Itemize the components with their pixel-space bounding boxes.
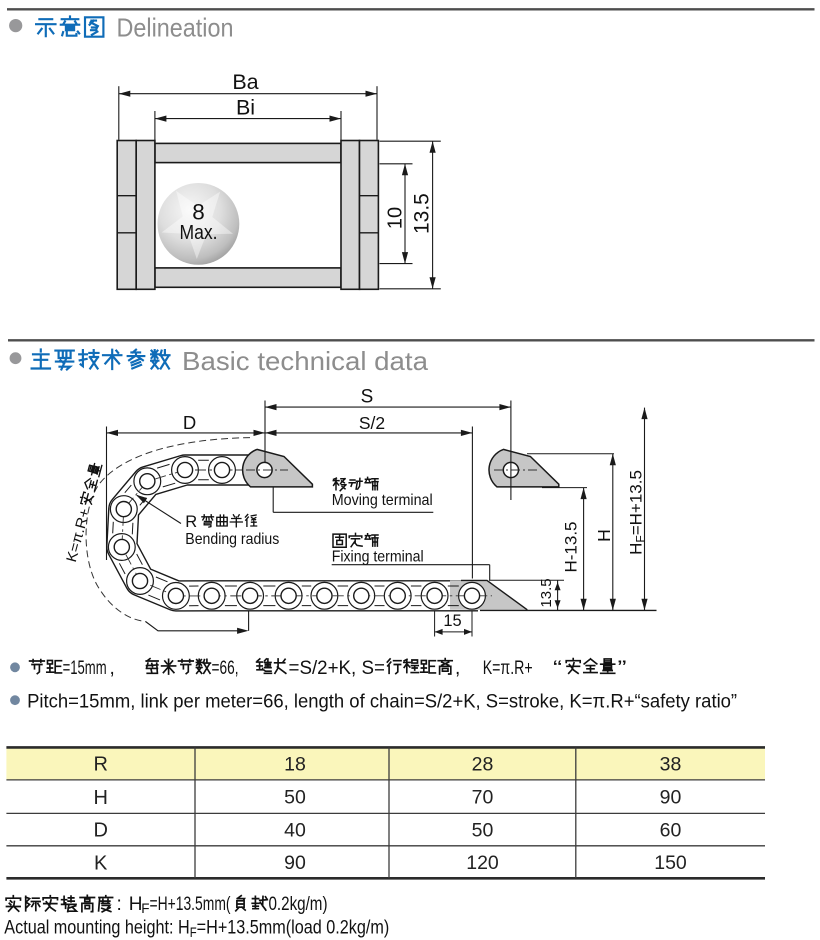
svg-text:=H+13.5mm(: =H+13.5mm( xyxy=(150,894,231,915)
svg-text:=S/2+K, S=: =S/2+K, S= xyxy=(289,658,385,679)
svg-text:”: ” xyxy=(618,658,627,679)
svg-text:Pitch=15mm, link per meter=66,: Pitch=15mm, link per meter=66, length of… xyxy=(27,692,737,713)
svg-text:Delineation: Delineation xyxy=(117,13,234,43)
svg-text:60: 60 xyxy=(660,820,682,842)
svg-text:Moving terminal: Moving terminal xyxy=(332,492,433,509)
svg-text:K: K xyxy=(94,852,108,874)
svg-text:Max.: Max. xyxy=(180,222,218,244)
svg-text:18: 18 xyxy=(284,753,306,775)
svg-text:90: 90 xyxy=(660,787,682,809)
svg-text:D: D xyxy=(183,412,196,433)
svg-text:90: 90 xyxy=(284,852,306,874)
svg-text:Bending radius: Bending radius xyxy=(185,531,279,548)
svg-text:HF=H+13.5: HF=H+13.5 xyxy=(627,470,648,555)
svg-text:Basic technical data: Basic technical data xyxy=(182,346,429,376)
svg-text:13.5: 13.5 xyxy=(411,193,434,234)
svg-text:0.2kg/m): 0.2kg/m) xyxy=(269,894,328,915)
svg-text:Ba: Ba xyxy=(232,70,258,94)
svg-text:13.5: 13.5 xyxy=(538,578,555,607)
svg-text:Bi: Bi xyxy=(236,95,255,119)
svg-text:H: H xyxy=(594,529,614,542)
svg-text:K=π.R+: K=π.R+ xyxy=(64,507,94,564)
svg-text:50: 50 xyxy=(284,787,306,809)
svg-text:Fixing terminal: Fixing terminal xyxy=(332,548,424,565)
svg-text:F: F xyxy=(141,901,149,916)
svg-text:70: 70 xyxy=(472,787,494,809)
svg-text:R: R xyxy=(185,513,197,531)
svg-text:40: 40 xyxy=(284,820,306,842)
svg-text:=15mm: =15mm xyxy=(63,658,107,679)
svg-text:28: 28 xyxy=(472,753,494,775)
svg-text:R: R xyxy=(93,754,107,776)
svg-text:,: , xyxy=(455,658,460,679)
svg-text:“: “ xyxy=(553,658,562,679)
svg-text:Actual mounting height: HF=H+1: Actual mounting height: HF=H+13.5mm(load… xyxy=(4,917,389,939)
svg-text:8: 8 xyxy=(192,200,205,225)
svg-text:120: 120 xyxy=(466,852,499,874)
svg-text:50: 50 xyxy=(472,820,494,842)
svg-text:H: H xyxy=(93,787,107,809)
svg-text:15: 15 xyxy=(443,612,461,630)
svg-text::: : xyxy=(117,894,122,915)
svg-text:38: 38 xyxy=(660,753,682,775)
svg-text:150: 150 xyxy=(654,852,687,874)
svg-text:D: D xyxy=(93,820,107,842)
svg-text:S: S xyxy=(361,387,374,408)
svg-text:=66,: =66, xyxy=(212,658,239,679)
svg-text:,: , xyxy=(110,658,115,679)
svg-text:H-13.5: H-13.5 xyxy=(562,521,581,572)
svg-text:K=π.R+: K=π.R+ xyxy=(483,658,533,679)
svg-text:S/2: S/2 xyxy=(359,413,385,433)
svg-text:10: 10 xyxy=(385,207,407,229)
